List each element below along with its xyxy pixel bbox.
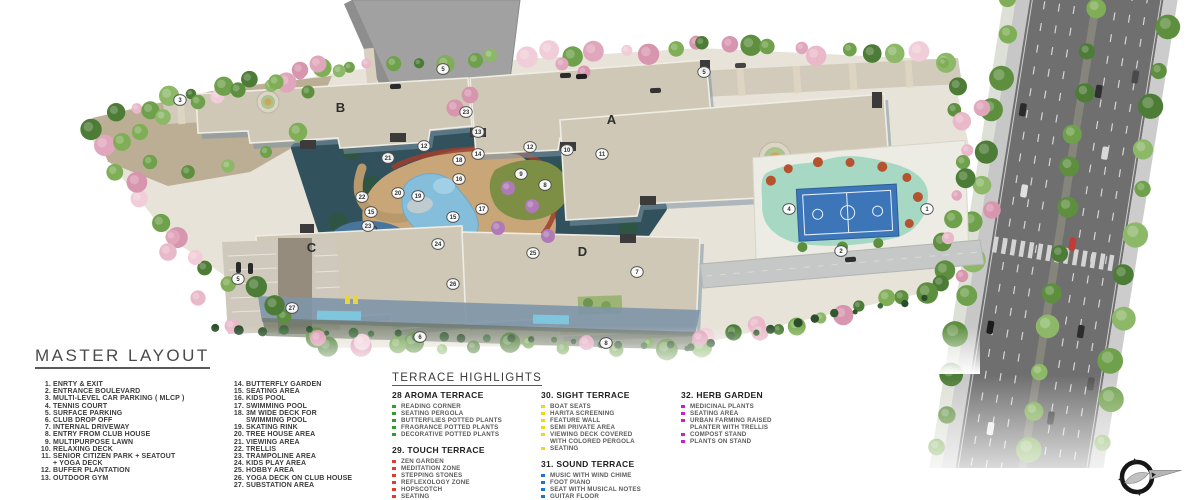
plan-marker-8: 8 [600, 338, 612, 349]
terrace-item: COMPOST STAND [681, 431, 833, 438]
plan-marker-5: 5 [437, 64, 449, 75]
legend-item: 21.VIEWING AREA [230, 439, 398, 446]
svg-text:10: 10 [564, 148, 571, 154]
bullet-icon [392, 426, 396, 430]
plan-marker-24: 24 [432, 239, 444, 250]
legend-item-number: 15. [230, 388, 244, 395]
legend-item-number: 14. [230, 381, 244, 388]
plan-marker-10: 10 [561, 145, 573, 156]
bullet-icon [541, 426, 545, 430]
legend-item-number: 5. [37, 410, 51, 417]
legend-item: 17.SWIMMING POOL [230, 403, 398, 410]
legend-item-label: ENTRY FROM CLUB HOUSE [53, 431, 233, 438]
svg-text:18: 18 [456, 158, 463, 164]
legend-column-1: 1.ENRTY & EXIT2.ENTRANCE BOULEVARD3.MULT… [37, 381, 233, 482]
terrace-item-label: READING CORNER [401, 403, 542, 410]
legend-item: 14.BUTTERFLY GARDEN [230, 381, 398, 388]
plan-marker-5: 5 [232, 274, 244, 285]
terrace-item-label: ZEN GARDEN [401, 458, 542, 465]
terrace-item-label: SEATING PERGOLA [401, 410, 542, 417]
legend-item: 13.OUTDOOR GYM [37, 475, 233, 482]
svg-text:11: 11 [599, 152, 606, 158]
legend-item-number: 3. [37, 395, 51, 402]
terrace-item: MEDICINAL PLANTS [681, 403, 833, 410]
legend-item: 25.HOBBY AREA [230, 467, 398, 474]
legend-item-number: 18. [230, 410, 244, 424]
terrace-highlights-title: TERRACE HIGHLIGHTS [392, 372, 542, 386]
terrace-item: REFLEXOLOGY ZONE [392, 479, 542, 486]
building-label-A: A [607, 112, 617, 127]
terrace-item-label: REFLEXOLOGY ZONE [401, 479, 542, 486]
plan-marker-4: 4 [783, 204, 795, 215]
bullet-icon [541, 481, 545, 485]
legend-item-number: 13. [37, 475, 51, 482]
legend-item: 23.TRAMPOLINE AREA [230, 453, 398, 460]
terrace-group: 29. TOUCH TERRACEZEN GARDENMEDITATION ZO… [392, 445, 542, 500]
legend-item: 15.SEATING AREA [230, 388, 398, 395]
plan-marker-7: 7 [631, 267, 643, 278]
legend-item-label: ENRTY & EXIT [53, 381, 233, 388]
legend-item-number: 2. [37, 388, 51, 395]
legend-item-number: 26. [230, 475, 244, 482]
bullet-icon [541, 412, 545, 416]
legend-item-label: TRAMPOLINE AREA [246, 453, 398, 460]
terrace-item: DECORATIVE POTTED PLANTS [392, 431, 542, 438]
legend-item: 8.ENTRY FROM CLUB HOUSE [37, 431, 233, 438]
terrace-group-title: 31. SOUND TERRACE [541, 459, 683, 469]
legend-item-label: 3M WIDE DECK FOR SWIMMING POOL [246, 410, 398, 424]
bullet-icon [392, 412, 396, 416]
legend-item: 11.SENIOR CITIZEN PARK + SEATOUT + YOGA … [37, 453, 233, 467]
bullet-icon [541, 488, 545, 492]
terrace-item-label: VIEWING DECK COVERED WITH COLORED PERGOL… [550, 431, 683, 445]
legend-item: 22.TRELLIS [230, 446, 398, 453]
terrace-group-title: 32. HERB GARDEN [681, 390, 833, 400]
svg-text:21: 21 [385, 156, 392, 162]
legend-item: 1.ENRTY & EXIT [37, 381, 233, 388]
terrace-item: URBAN FARMING RAISED PLANTER WITH TRELLI… [681, 417, 833, 431]
legend-item-label: SENIOR CITIZEN PARK + SEATOUT + YOGA DEC… [53, 453, 233, 467]
legend-item-number: 6. [37, 417, 51, 424]
terrace-item: MEDITATION ZONE [392, 465, 542, 472]
terrace-item-label: MEDITATION ZONE [401, 465, 542, 472]
svg-text:17: 17 [479, 207, 486, 213]
plan-marker-9: 9 [515, 169, 527, 180]
terrace-item-label: FRAGRANCE POTTED PLANTS [401, 424, 542, 431]
legend-item-label: KIDS POOL [246, 395, 398, 402]
terrace-group: 32. HERB GARDENMEDICINAL PLANTSSEATING A… [681, 390, 833, 445]
svg-text:12: 12 [527, 145, 534, 151]
terrace-item-label: COMPOST STAND [690, 431, 833, 438]
svg-text:23: 23 [365, 224, 372, 230]
legend-item: 9.MULTIPURPOSE LAWN [37, 439, 233, 446]
building-label-C: C [307, 240, 317, 255]
bullet-icon [541, 405, 545, 409]
plan-marker-1: 1 [921, 204, 933, 215]
terrace-item: HARITA SCREENING [541, 410, 683, 417]
bullet-icon [392, 433, 396, 437]
terrace-item-label: URBAN FARMING RAISED PLANTER WITH TRELLI… [690, 417, 833, 431]
terrace-column-3: 32. HERB GARDENMEDICINAL PLANTSSEATING A… [681, 390, 833, 452]
legend-column-2: 14.BUTTERFLY GARDEN15.SEATING AREA16.KID… [230, 381, 398, 489]
legend-item-label: OUTDOOR GYM [53, 475, 233, 482]
bullet-icon [681, 440, 685, 444]
legend-item-label: YOGA DECK ON CLUB HOUSE [246, 475, 398, 482]
terrace-item: FOOT PIANO [541, 479, 683, 486]
legend-item-label: RELAXING DECK [53, 446, 233, 453]
terrace-group-title: 29. TOUCH TERRACE [392, 445, 542, 455]
legend-item-number: 9. [37, 439, 51, 446]
building-label-B: B [336, 100, 346, 115]
legend-item-number: 23. [230, 453, 244, 460]
bullet-icon [681, 412, 685, 416]
terrace-item-label: BUTTERFLIES POTTED PLANTS [401, 417, 542, 424]
terrace-item: SEMI PRIVATE AREA [541, 424, 683, 431]
bullet-icon [681, 433, 685, 437]
terrace-item: HOPSCOTCH [392, 486, 542, 493]
legend-item-number: 22. [230, 446, 244, 453]
plan-marker-12: 12 [524, 142, 536, 153]
legend-item: 4.TENNIS COURT [37, 403, 233, 410]
legend-item-number: 25. [230, 467, 244, 474]
legend-item-label: MULTIPURPOSE LAWN [53, 439, 233, 446]
terrace-item: PLANTS ON STAND [681, 438, 833, 445]
terrace-item: FEATURE WALL [541, 417, 683, 424]
bullet-icon [541, 419, 545, 423]
plan-marker-23: 23 [362, 221, 374, 232]
legend-item-label: CLUB DROP OFF [53, 417, 233, 424]
legend-item-number: 20. [230, 431, 244, 438]
svg-text:15: 15 [368, 210, 375, 216]
terrace-item-label: MUSIC WITH WIND CHIME [550, 472, 683, 479]
legend-item: 12.BUFFER PLANTATION [37, 467, 233, 474]
legend-item-number: 1. [37, 381, 51, 388]
legend-item-label: HOBBY AREA [246, 467, 398, 474]
terrace-group: 30. SIGHT TERRACEBOAT SEATSHARITA SCREEN… [541, 390, 683, 452]
terrace-item: VIEWING DECK COVERED WITH COLORED PERGOL… [541, 431, 683, 445]
bullet-icon [541, 474, 545, 478]
terrace-item-label: SEATING [401, 493, 542, 500]
legend-item-label: MULTI-LEVEL CAR PARKING ( MLCP ) [53, 395, 233, 402]
legend-item-number: 19. [230, 424, 244, 431]
terrace-item-label: DECORATIVE POTTED PLANTS [401, 431, 542, 438]
bullet-icon [392, 474, 396, 478]
plan-marker-8: 8 [539, 180, 551, 191]
legend-item-label: BUFFER PLANTATION [53, 467, 233, 474]
plan-marker-6: 6 [414, 332, 426, 343]
plan-marker-18: 18 [453, 155, 465, 166]
plan-marker-3: 3 [174, 95, 186, 106]
terrace-item: READING CORNER [392, 403, 542, 410]
svg-text:24: 24 [435, 242, 442, 248]
svg-text:20: 20 [395, 191, 402, 197]
legend-item-label: ENTRANCE BOULEVARD [53, 388, 233, 395]
plan-marker-13: 13 [472, 127, 484, 138]
plan-marker-16: 16 [453, 174, 465, 185]
bullet-icon [541, 447, 545, 451]
legend-item-label: TRELLIS [246, 446, 398, 453]
plan-marker-22: 22 [356, 192, 368, 203]
terrace-item: SEATING AREA [681, 410, 833, 417]
plan-marker-15: 15 [447, 212, 459, 223]
legend-item: 2.ENTRANCE BOULEVARD [37, 388, 233, 395]
plan-marker-26: 26 [447, 279, 459, 290]
terrace-item-label: HARITA SCREENING [550, 410, 683, 417]
legend-item: 3.MULTI-LEVEL CAR PARKING ( MLCP ) [37, 395, 233, 402]
terrace-item: SEATING [541, 445, 683, 452]
bullet-icon [392, 467, 396, 471]
svg-text:27: 27 [289, 306, 296, 312]
legend-item-label: TREE HOUSE AREA [246, 431, 398, 438]
plan-marker-11: 11 [596, 149, 608, 160]
terrace-item: SEATING [392, 493, 542, 500]
terrace-item: BOAT SEATS [541, 403, 683, 410]
plan-marker-20: 20 [392, 188, 404, 199]
legend-item-number: 17. [230, 403, 244, 410]
terrace-group: 28 AROMA TERRACEREADING CORNERSEATING PE… [392, 390, 542, 438]
svg-text:26: 26 [450, 282, 457, 288]
terrace-item-label: MEDICINAL PLANTS [690, 403, 833, 410]
svg-text:14: 14 [475, 152, 482, 158]
terrace-item: BUTTERFLIES POTTED PLANTS [392, 417, 542, 424]
bullet-icon [541, 433, 545, 437]
terrace-item-label: BOAT SEATS [550, 403, 683, 410]
legend-item: 27.SUBSTATION AREA [230, 482, 398, 489]
bullet-icon [681, 405, 685, 409]
legend-item-number: 27. [230, 482, 244, 489]
plan-marker-21: 21 [382, 153, 394, 164]
legend-item: 6.CLUB DROP OFF [37, 417, 233, 424]
terrace-item-label: FOOT PIANO [550, 479, 683, 486]
legend-item-label: SEATING AREA [246, 388, 398, 395]
terrace-item-label: SEAT WITH MUSICAL NOTES [550, 486, 683, 493]
terrace-item: SEATING PERGOLA [392, 410, 542, 417]
legend-item-label: SURFACE PARKING [53, 410, 233, 417]
terrace-item: MUSIC WITH WIND CHIME [541, 472, 683, 479]
bullet-icon [541, 495, 545, 499]
legend-item-number: 12. [37, 467, 51, 474]
terrace-item-label: SEMI PRIVATE AREA [550, 424, 683, 431]
legend-item-number: 4. [37, 403, 51, 410]
plan-marker-5: 5 [698, 67, 710, 78]
legend-item-label: KIDS PLAY AREA [246, 460, 398, 467]
bullet-icon [392, 460, 396, 464]
plan-marker-25: 25 [527, 248, 539, 259]
legend-item-label: TENNIS COURT [53, 403, 233, 410]
legend-item-label: INTERNAL DRIVEWAY [53, 424, 233, 431]
legend-item-number: 24. [230, 460, 244, 467]
terrace-item: GUITAR FLOOR [541, 493, 683, 500]
legend-item-label: SWIMMING POOL [246, 403, 398, 410]
legend-item-label: SUBSTATION AREA [246, 482, 398, 489]
terrace-group-title: 30. SIGHT TERRACE [541, 390, 683, 400]
terrace-item: STEPPING STONES [392, 472, 542, 479]
bullet-icon [392, 488, 396, 492]
plan-marker-12: 12 [418, 141, 430, 152]
terrace-item-label: STEPPING STONES [401, 472, 542, 479]
master-layout-title: MASTER LAYOUT [35, 346, 210, 369]
terrace-column-1: 28 AROMA TERRACEREADING CORNERSEATING PE… [392, 390, 542, 500]
plan-marker-27: 27 [286, 303, 298, 314]
terrace-item-label: HOPSCOTCH [401, 486, 542, 493]
legend-item-label: BUTTERFLY GARDEN [246, 381, 398, 388]
terrace-item-label: PLANTS ON STAND [690, 438, 833, 445]
bullet-icon [392, 419, 396, 423]
svg-text:13: 13 [475, 130, 482, 136]
legend-item: 19.SKATING RINK [230, 424, 398, 431]
legend-item-label: SKATING RINK [246, 424, 398, 431]
legend-item: 24.KIDS PLAY AREA [230, 460, 398, 467]
legend-item: 18.3M WIDE DECK FOR SWIMMING POOL [230, 410, 398, 424]
terrace-item-label: SEATING [550, 445, 683, 452]
kids-pool [433, 178, 455, 194]
svg-text:25: 25 [530, 251, 537, 257]
terrace-item-label: SEATING AREA [690, 410, 833, 417]
terrace-item-label: FEATURE WALL [550, 417, 683, 424]
svg-text:15: 15 [450, 215, 457, 221]
terrace-item-label: GUITAR FLOOR [550, 493, 683, 500]
svg-text:19: 19 [415, 194, 422, 200]
legend-item: 16.KIDS POOL [230, 395, 398, 402]
legend-item-number: 16. [230, 395, 244, 402]
terrace-item: FRAGRANCE POTTED PLANTS [392, 424, 542, 431]
bullet-icon [392, 495, 396, 499]
plan-marker-14: 14 [472, 149, 484, 160]
legend-item: 20.TREE HOUSE AREA [230, 431, 398, 438]
legend-item: 7.INTERNAL DRIVEWAY [37, 424, 233, 431]
legend-item: 5.SURFACE PARKING [37, 410, 233, 417]
svg-text:12: 12 [421, 144, 428, 150]
svg-text:16: 16 [456, 177, 463, 183]
building-label-D: D [578, 244, 588, 259]
legend-item-number: 8. [37, 431, 51, 438]
svg-text:23: 23 [463, 110, 470, 116]
terrace-column-2: 30. SIGHT TERRACEBOAT SEATSHARITA SCREEN… [541, 390, 683, 500]
bullet-icon [392, 405, 396, 409]
legend-item-number: 7. [37, 424, 51, 431]
terrace-group-title: 28 AROMA TERRACE [392, 390, 542, 400]
legend-item: 26.YOGA DECK ON CLUB HOUSE [230, 475, 398, 482]
legend-item-number: 21. [230, 439, 244, 446]
plan-marker-2: 2 [835, 246, 847, 257]
legend-item-number: 10. [37, 446, 51, 453]
legend-item-number: 11. [37, 453, 51, 467]
legend-item: 10.RELAXING DECK [37, 446, 233, 453]
bullet-icon [392, 481, 396, 485]
plan-marker-23: 23 [460, 107, 472, 118]
plan-marker-15: 15 [365, 207, 377, 218]
master-layout-page: 1234555678891011121213141515161718192021… [0, 0, 1200, 500]
bullet-icon [681, 419, 685, 423]
terrace-item: SEAT WITH MUSICAL NOTES [541, 486, 683, 493]
terrace-group: 31. SOUND TERRACEMUSIC WITH WIND CHIMEFO… [541, 459, 683, 500]
plan-marker-17: 17 [476, 204, 488, 215]
terrace-item: ZEN GARDEN [392, 458, 542, 465]
legend-item-label: VIEWING AREA [246, 439, 398, 446]
plan-marker-19: 19 [412, 191, 424, 202]
roof-mandala-b [257, 91, 279, 113]
svg-text:22: 22 [359, 195, 366, 201]
